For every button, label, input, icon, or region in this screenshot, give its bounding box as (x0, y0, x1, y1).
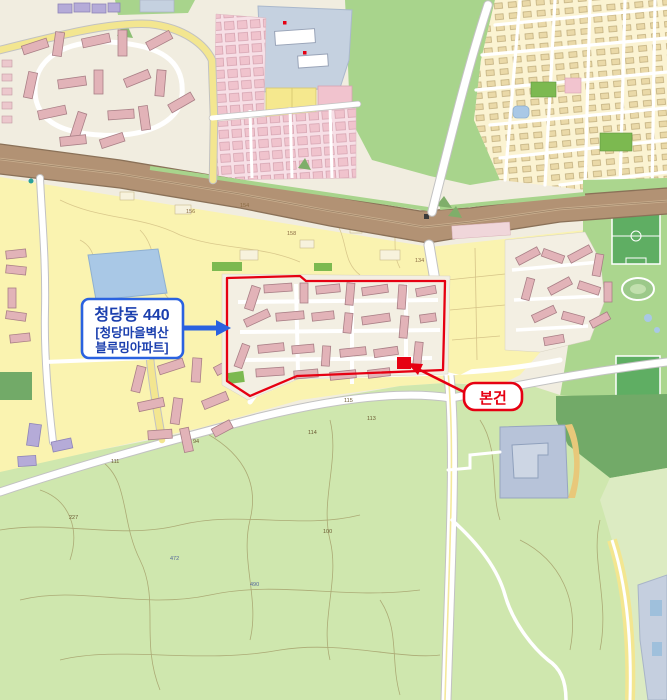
green-lot (212, 262, 242, 271)
pond (513, 106, 529, 118)
park-square (531, 82, 556, 97)
parcel-number: 100 (323, 529, 332, 535)
park-square (600, 133, 632, 151)
commercial-grid-west (214, 14, 266, 116)
lake (88, 249, 167, 300)
subject-callout: 본건 (464, 383, 522, 410)
cadastral-map: 15415615813411511311494111227100472490 본… (0, 0, 667, 700)
address-line1: 청당동 440 (94, 305, 169, 324)
address-line3: 블루밍아파트] (95, 340, 168, 355)
parcel-number: 158 (287, 231, 296, 237)
subject-marker (397, 357, 411, 369)
school-zone (258, 6, 352, 92)
parcel-number: 472 (170, 556, 179, 562)
parcel-number: 111 (111, 459, 119, 465)
parcel-number: 154 (240, 203, 249, 209)
running-track (622, 278, 654, 300)
park-pool (654, 327, 660, 333)
address-line2: [청당마을벽산 (95, 325, 169, 340)
green-lot (314, 263, 332, 271)
parcel-number: 134 (415, 258, 424, 264)
parcel-number: 156 (186, 209, 195, 215)
pink-parcel (565, 78, 581, 93)
parcel-number: 113 (367, 416, 376, 422)
park-pool (644, 314, 652, 322)
parcel-number: 115 (344, 398, 353, 404)
parcel-number: 227 (69, 515, 78, 521)
parcel-number: 94 (193, 439, 199, 445)
subject-callout-label: 본건 (479, 390, 507, 407)
parcel-number: 114 (308, 430, 317, 436)
poi-dot (29, 179, 34, 184)
residential-grid (474, 0, 667, 190)
parcel-number: 490 (250, 582, 259, 588)
